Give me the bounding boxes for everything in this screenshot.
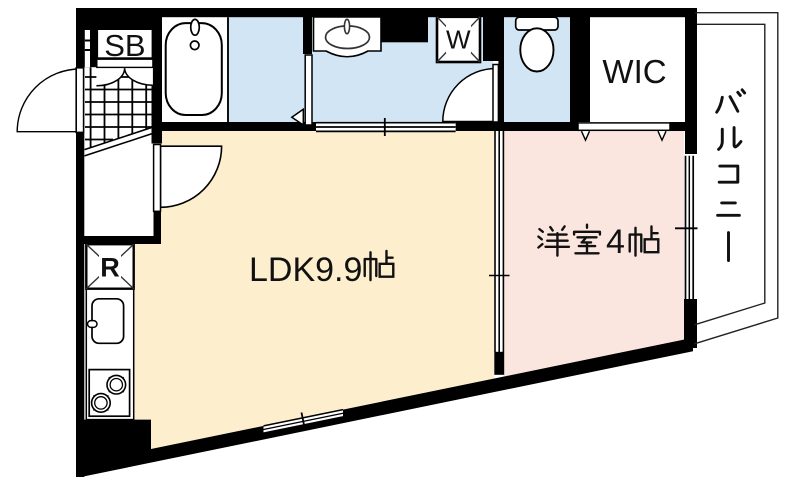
svg-text:SB: SB [104,28,145,63]
svg-text:R: R [100,253,120,283]
svg-text:WIC: WIC [602,53,666,90]
svg-text:4: 4 [606,223,625,261]
svg-text:W: W [446,25,471,55]
svg-text:LDK9.9: LDK9.9 [249,251,362,289]
